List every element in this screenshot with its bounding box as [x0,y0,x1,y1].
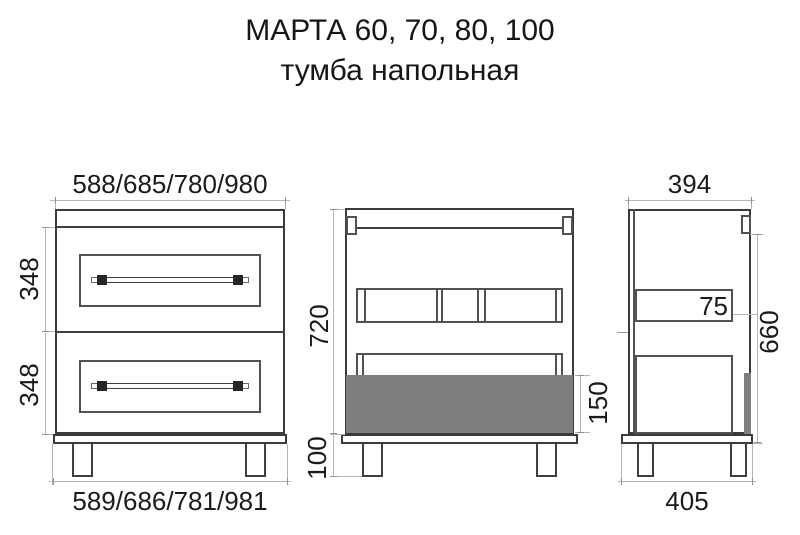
side-drawer-bottom-strip [744,373,751,434]
back-top-rail [356,227,563,229]
side-height-dim: 660 [756,305,782,359]
dim-tick [577,375,584,376]
back-right-leg [536,444,557,477]
back-plinth [341,434,578,444]
front-drawer1-height-dim: 348 [16,252,42,306]
dim-tick [285,197,286,204]
drawing-title-line1: МАРТА 60, 70, 80, 100 [0,14,800,48]
drawer-gap-tick [617,332,628,333]
dim-line [50,200,290,201]
handle-bar [99,277,241,283]
side-mounting-bracket [741,215,751,234]
handle-end-tab [242,383,249,389]
dim-tick [752,478,753,485]
drawing-title-line2: тумба напольная [0,54,800,88]
front-left-leg [72,444,93,477]
rail-divider [477,290,479,321]
dim-line [45,227,46,331]
side-front-leg [637,444,654,477]
side-rail-band: 75 [635,289,733,322]
side-depth-bottom-dim: 405 [621,487,753,515]
handle-mount [97,381,107,391]
front-width-top-dim: 588/685/780/980 [55,170,285,198]
back-drawer-depth-dim: 150 [585,376,611,430]
ext-line [753,443,763,444]
back-drawer-bottom-zone [346,375,573,433]
dim-tick [53,478,54,485]
dim-tick [287,478,288,485]
back-left-bracket [346,216,357,235]
dim-tick [751,197,752,204]
handle-end-tab [242,277,249,283]
handle-bar [99,383,241,389]
rail-divider [555,355,557,375]
dim-tick [754,442,761,443]
dim-line [580,375,581,433]
back-left-leg [362,444,383,477]
rail-divider [555,290,557,321]
front-drawer-gap-line [55,331,285,333]
handle-mount [233,381,243,391]
rail-divider [436,290,438,321]
front-plinth [53,434,287,444]
dim-tick [42,331,49,332]
dim-tick [330,209,337,210]
handle-mount [233,275,243,285]
dim-line [45,333,46,434]
front-drawer2-handle [91,380,249,392]
back-right-bracket [562,216,573,235]
front-width-bottom-dim: 589/686/781/981 [55,487,285,515]
side-plinth [621,434,753,444]
dim-tick [628,197,629,204]
dim-tick [42,227,49,228]
front-drawer2-height-dim: 348 [16,358,42,412]
back-height-dim: 720 [306,299,332,353]
front-top-band-line [55,226,285,228]
rail-divider [362,355,364,375]
side-drawer-box [635,355,733,434]
handle-mount [97,275,107,285]
front-drawer1-handle [91,274,249,286]
dim-tick [55,197,56,204]
dim-tick [42,434,49,435]
rail-divider [441,290,443,321]
rail-divider [484,290,486,321]
dim-line [333,434,334,477]
dim-line [49,481,291,482]
dim-line [625,200,755,201]
dim-tick [754,234,761,235]
side-depth-top-dim: 394 [628,170,751,198]
back-upper-rail-band [356,288,563,323]
back-lower-rail-band [356,353,563,377]
dim-line [618,481,756,482]
side-rail-height-dim: 75 [699,292,728,320]
front-right-leg [245,444,266,477]
technical-drawing: МАРТА 60, 70, 80, 100 тумба напольная 58… [0,0,800,535]
dim-tick [577,432,584,433]
dim-tick [621,478,622,485]
rail-divider [364,290,366,321]
back-leg-height-dim: 100 [304,431,330,485]
side-back-leg [730,444,747,477]
